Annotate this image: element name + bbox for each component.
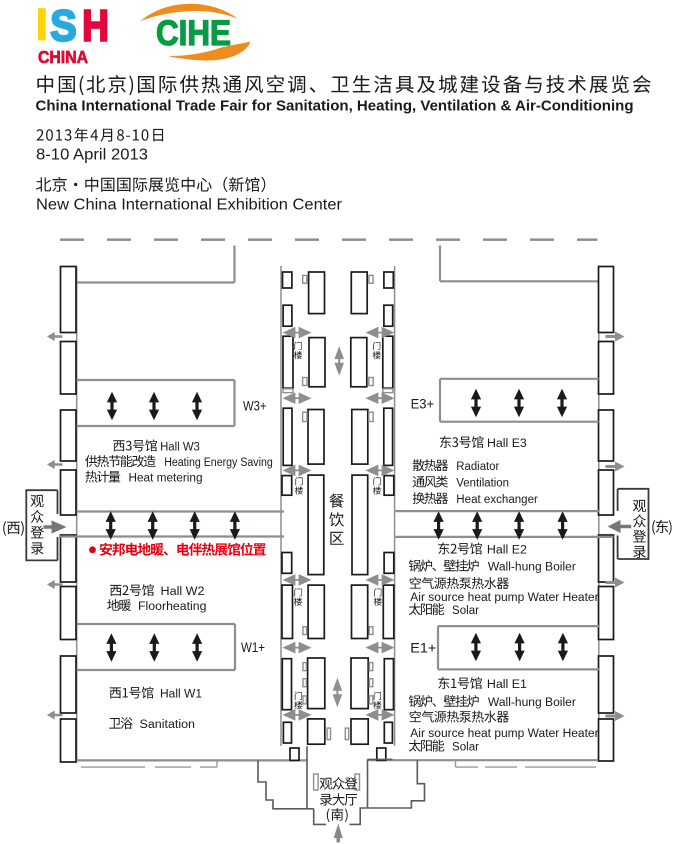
- svg-text:Radiator: Radiator: [456, 461, 499, 473]
- svg-text:H: H: [82, 1, 109, 50]
- svg-text:S: S: [50, 1, 76, 50]
- svg-text:Floorheating: Floorheating: [138, 601, 207, 613]
- svg-text:Hall E3: Hall E3: [487, 438, 527, 450]
- svg-text:Hall W1: Hall W1: [160, 689, 202, 701]
- svg-text:Solar: Solar: [452, 742, 479, 754]
- svg-text:Hall E2: Hall E2: [487, 545, 527, 557]
- svg-text:New China International Exhibi: New China International Exhibition Cente…: [36, 197, 342, 214]
- svg-text:Air source heat pump Water Hea: Air source heat pump Water Heater: [410, 592, 598, 604]
- svg-text:Wall-hung Boiler: Wall-hung Boiler: [488, 562, 576, 574]
- svg-text:Solar: Solar: [452, 605, 479, 617]
- svg-text:Heat exchanger: Heat exchanger: [456, 494, 538, 506]
- svg-text:China International Trade Fair: China International Trade Fair for Sanit…: [36, 99, 634, 115]
- svg-text:8-10 April 2013: 8-10 April 2013: [36, 147, 148, 164]
- svg-text:CIHE: CIHE: [156, 14, 231, 53]
- svg-text:Hall W2: Hall W2: [161, 586, 205, 598]
- svg-text:Heating Energy Saving: Heating Energy Saving: [164, 457, 273, 469]
- svg-text:Hall E1: Hall E1: [487, 679, 527, 691]
- svg-text:Sanitation: Sanitation: [140, 719, 196, 731]
- svg-text:Heat metering: Heat metering: [129, 473, 203, 485]
- svg-text:Ventilation: Ventilation: [456, 478, 509, 490]
- svg-text:Hall W3: Hall W3: [160, 441, 200, 453]
- svg-text:E3+: E3+: [411, 397, 435, 412]
- svg-text:W1+: W1+: [241, 640, 265, 655]
- svg-text:CHINA: CHINA: [38, 47, 88, 67]
- svg-text:E1+: E1+: [410, 641, 436, 656]
- svg-text:W3+: W3+: [243, 399, 267, 414]
- svg-text:Air source heat pump Water Hea: Air source heat pump Water Heater: [410, 728, 598, 740]
- svg-text:Wall-hung Boiler: Wall-hung Boiler: [488, 697, 576, 709]
